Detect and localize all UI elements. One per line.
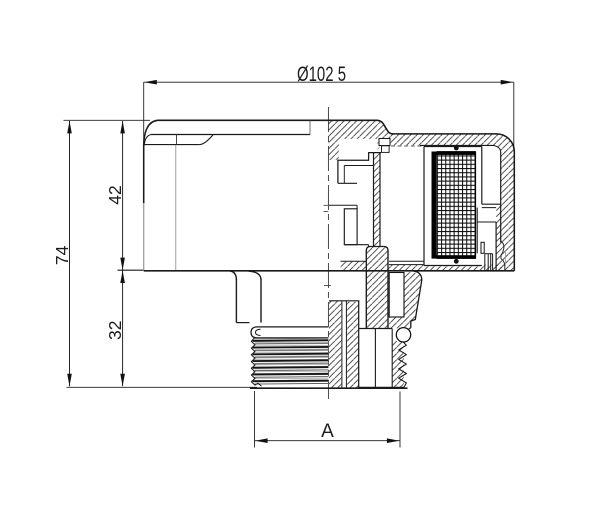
svg-text:Ø102 5: Ø102 5 [297, 63, 346, 86]
svg-text:74: 74 [52, 245, 72, 265]
svg-text:42: 42 [105, 185, 125, 204]
svg-text:32: 32 [105, 320, 125, 339]
svg-text:A: A [321, 421, 334, 442]
